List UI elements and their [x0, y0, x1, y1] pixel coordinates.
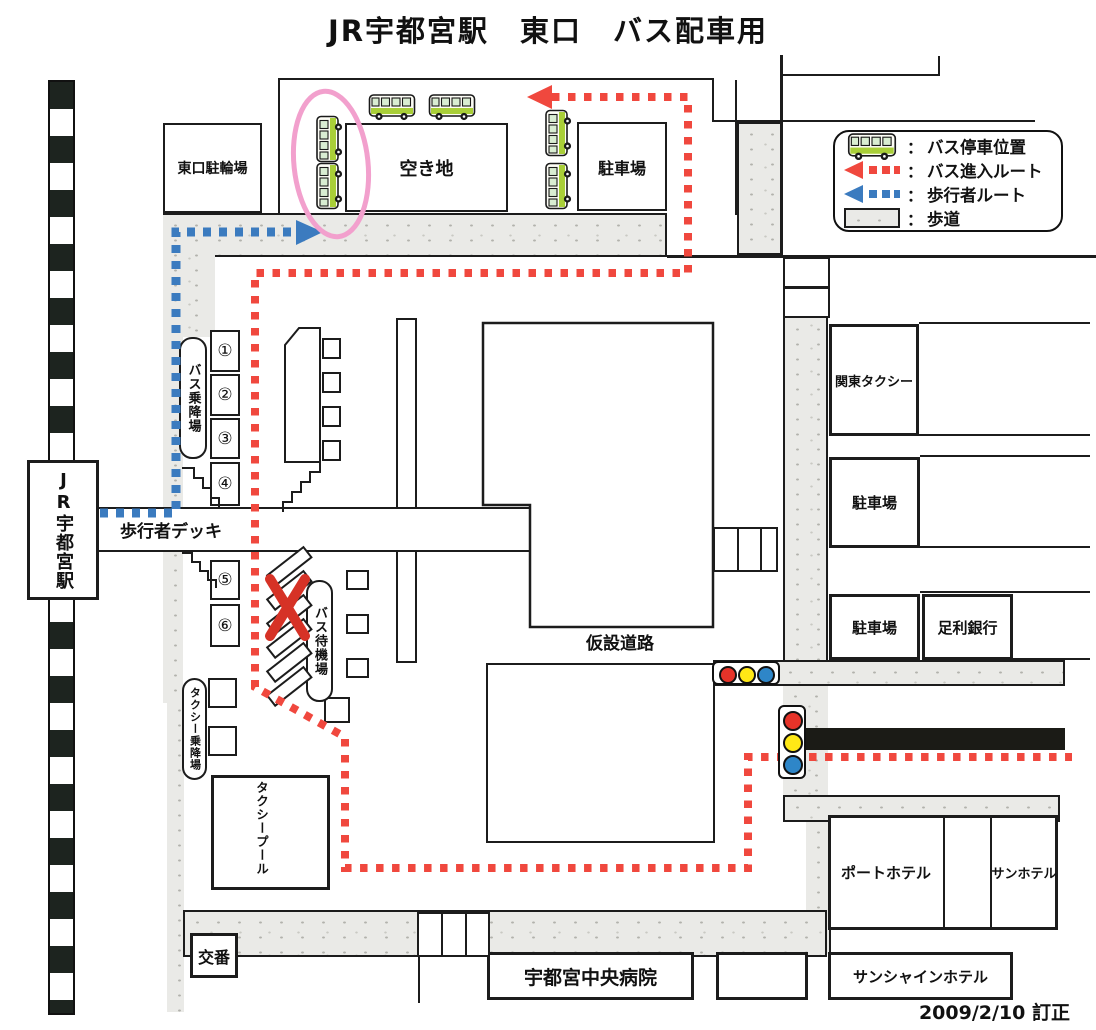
building-jr-station: JR宇都宮駅 — [27, 460, 99, 600]
signal-yellow — [783, 733, 803, 753]
stop-number: ③ — [217, 429, 232, 449]
road-line — [712, 78, 714, 122]
legend-label: バス進入ルート — [927, 158, 1043, 182]
temporary-road-label-wrap: 仮設道路 — [560, 629, 680, 653]
pedestrian-deck: 歩行者デッキ — [98, 507, 530, 552]
building-parking-low: 駐車場 — [829, 594, 920, 660]
pedestrian-deck-label-wrap: 歩行者デッキ — [98, 509, 530, 550]
stall-box — [346, 614, 369, 634]
legend: ： バス停車位置 ： バス進入ルート ： 歩行者ルート ： 歩道 — [833, 130, 1063, 232]
crosswalk-stripe — [465, 914, 467, 955]
sidewalk-top — [163, 213, 667, 257]
traffic-light-vertical — [778, 705, 806, 779]
stall-box — [324, 697, 350, 723]
station-area-map: JR宇都宮駅 東口 バス配車用 東口駐輪場 空き地 駐車場 関東タクシー 駐車場 — [0, 0, 1096, 1030]
stall-box — [322, 406, 341, 427]
crosswalk — [417, 912, 490, 957]
bicycle-parking-label: 東口駐輪場 — [178, 158, 248, 178]
legend-separator: ： — [907, 182, 923, 206]
stop-number: ① — [217, 341, 232, 361]
road-line — [920, 455, 1090, 457]
stall-box — [322, 338, 341, 359]
crosswalk — [713, 527, 778, 572]
road-line — [919, 434, 1090, 436]
legend-label: 歩道 — [927, 206, 960, 230]
legend-row-pedestrian-route: ： 歩行者ルート — [841, 182, 1061, 206]
crosswalk-stripe — [760, 529, 762, 570]
building-bicycle-parking: 東口駐輪場 — [163, 123, 262, 213]
stop-number: ⑤ — [217, 570, 232, 590]
jr-station-label: JR宇都宮駅 — [50, 470, 76, 590]
bus-stop-5: ⑤ — [210, 560, 240, 600]
road-line — [780, 55, 783, 257]
main-road — [803, 728, 1065, 750]
legend-label: 歩行者ルート — [927, 182, 1026, 206]
taxi-boarding-label: タクシー乗降場 — [187, 687, 203, 771]
bus-waiting-label: バス待機場 — [310, 606, 329, 676]
bus-stop-2: ② — [210, 374, 240, 416]
parking-low-label: 駐車場 — [852, 617, 897, 638]
pedestrian-deck-label: 歩行者デッキ — [120, 517, 222, 542]
building-vacant-lot: 空き地 — [345, 123, 508, 212]
taxi-pool-label: タクシープール — [252, 781, 271, 885]
road-line — [735, 80, 737, 215]
kanto-taxi-label: 関東タクシー — [835, 371, 913, 390]
building-police-box: 交番 — [190, 933, 238, 978]
ashikaga-bank-label: 足利銀行 — [937, 617, 997, 638]
taxi-stop-box — [208, 678, 237, 708]
road-line — [1013, 658, 1090, 660]
signal-blue — [757, 666, 775, 684]
road-line — [919, 322, 1090, 324]
sun-hotel-label-wrap: サンホテル — [990, 815, 1058, 930]
stall-box — [346, 658, 369, 678]
port-hotel-label: ポートホテル — [841, 862, 931, 883]
road-line — [667, 255, 1096, 258]
legend-separator: ： — [907, 134, 923, 158]
building-ashikaga-bank: 足利銀行 — [922, 594, 1013, 660]
building-parking-top: 駐車場 — [577, 122, 667, 211]
road-line — [418, 955, 420, 1003]
legend-separator: ： — [907, 158, 923, 182]
bus-icon — [314, 162, 344, 210]
bus-stop-4: ④ — [210, 462, 240, 506]
bus-stop-1: ① — [210, 330, 240, 372]
bus-icon — [428, 92, 476, 122]
temporary-road-label: 仮設道路 — [586, 629, 654, 654]
parking-mid-label: 駐車場 — [852, 492, 897, 513]
building-sunshine-hotel: サンシャインホテル — [828, 952, 1013, 1000]
building-parking-mid: 駐車場 — [829, 457, 920, 548]
taxi-boarding-label-box: タクシー乗降場 — [182, 678, 207, 780]
signal-yellow — [738, 666, 756, 684]
crosswalk-stripe — [441, 914, 443, 955]
building-box-unlabeled — [716, 952, 808, 1000]
revision-date: 2009/2/10 訂正 — [890, 998, 1070, 1025]
sidewalk-bottom — [183, 910, 827, 957]
vacant-lot-label: 空き地 — [400, 155, 454, 181]
bus-icon — [841, 131, 903, 162]
road-line — [783, 74, 940, 76]
road-line — [278, 78, 280, 215]
stop-number: ② — [217, 385, 232, 405]
building-box-small — [783, 287, 830, 318]
bus-route-arrow-icon — [841, 161, 903, 179]
signal-red — [719, 666, 737, 684]
building-kanto-taxi: 関東タクシー — [829, 324, 919, 436]
police-box-label: 交番 — [198, 944, 230, 968]
bus-stop-6: ⑥ — [210, 604, 240, 647]
sidewalk-right-upper — [737, 122, 783, 255]
center-divider-band — [396, 318, 417, 663]
road-line — [920, 591, 1090, 593]
sidewalk-swatch — [841, 208, 903, 228]
closed-x-mark — [270, 579, 305, 636]
road-line — [829, 930, 831, 954]
stall-box — [322, 372, 341, 393]
bus-boarding-label-box: バス乗降場 — [179, 337, 207, 459]
sidewalk-left-upper — [163, 215, 215, 337]
hotel-divider — [943, 817, 945, 928]
legend-row-sidewalk: ： 歩道 — [841, 206, 1061, 230]
bus-icon — [368, 92, 416, 122]
sunshine-hotel-label: サンシャインホテル — [853, 966, 988, 987]
road-line — [712, 120, 1035, 122]
road-line — [938, 56, 940, 76]
legend-label: バス停車位置 — [927, 134, 1026, 158]
building-box-small — [783, 257, 830, 288]
general-car-boarding-label: 一般車乗降場 — [297, 361, 314, 439]
bus-boarding-label: バス乗降場 — [184, 363, 203, 433]
legend-row-bus-position: ： バス停車位置 — [841, 134, 1061, 158]
stall-box — [346, 570, 369, 590]
legend-row-bus-route: ： バス進入ルート — [841, 158, 1061, 182]
stall-box — [322, 440, 341, 461]
central-hospital-label: 宇都宮中央病院 — [524, 963, 657, 990]
port-hotel-label-wrap: ポートホテル — [830, 815, 942, 930]
bus-route-arrowhead — [527, 85, 552, 109]
legend-separator: ： — [907, 206, 923, 230]
stop-number: ⑥ — [217, 616, 232, 636]
stop-number: ④ — [217, 474, 232, 494]
bus-icon — [543, 162, 573, 210]
crosswalk-stripe — [737, 529, 739, 570]
road-line — [920, 546, 1090, 548]
building-central-lower — [486, 663, 715, 843]
bus-stop-3: ③ — [210, 418, 240, 459]
pedestrian-route-arrow-icon — [841, 185, 903, 203]
parking-top-label: 駐車場 — [598, 155, 646, 179]
taxi-stop-box — [208, 726, 237, 756]
building-central-hospital: 宇都宮中央病院 — [487, 952, 694, 1000]
bus-icon — [314, 115, 344, 163]
bus-waiting-slats — [267, 547, 311, 706]
stairs — [283, 462, 320, 512]
general-car-boarding-label-box: 一般車乗降場 — [292, 336, 318, 463]
signal-blue — [783, 755, 803, 775]
page-title: JR宇都宮駅 東口 バス配車用 — [0, 8, 1096, 50]
road-line — [278, 78, 714, 80]
bus-icon — [543, 109, 573, 157]
sun-hotel-label: サンホテル — [991, 863, 1056, 882]
building-central-upper — [483, 323, 713, 627]
traffic-light-horizontal — [712, 661, 780, 685]
signal-red — [783, 711, 803, 731]
bus-waiting-label-box: バス待機場 — [306, 580, 333, 702]
